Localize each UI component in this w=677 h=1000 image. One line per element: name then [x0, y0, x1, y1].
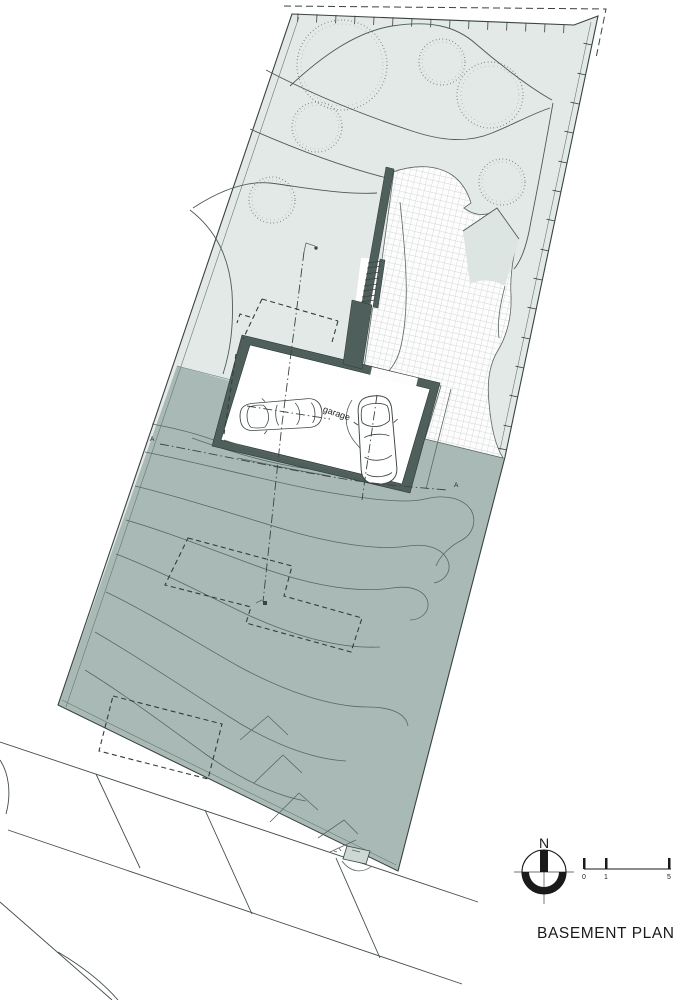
scale-tick-5: 5: [667, 874, 671, 881]
north-label: N: [539, 835, 549, 851]
basement-plan-drawing: garage A A N: [0, 0, 677, 1000]
section-marker-a-right: A: [454, 482, 459, 489]
page-title: BASEMENT PLAN: [537, 925, 675, 942]
section-marker-a-left: A: [150, 436, 155, 443]
scale-bar: 0 1 5: [582, 858, 671, 881]
section-b-dot-top: [314, 246, 317, 249]
north-arrow-icon: N: [514, 835, 574, 904]
section-b-marker-bottom: [263, 601, 267, 605]
scale-tick-0: 0: [582, 874, 586, 881]
scale-tick-1: 1: [604, 874, 608, 881]
